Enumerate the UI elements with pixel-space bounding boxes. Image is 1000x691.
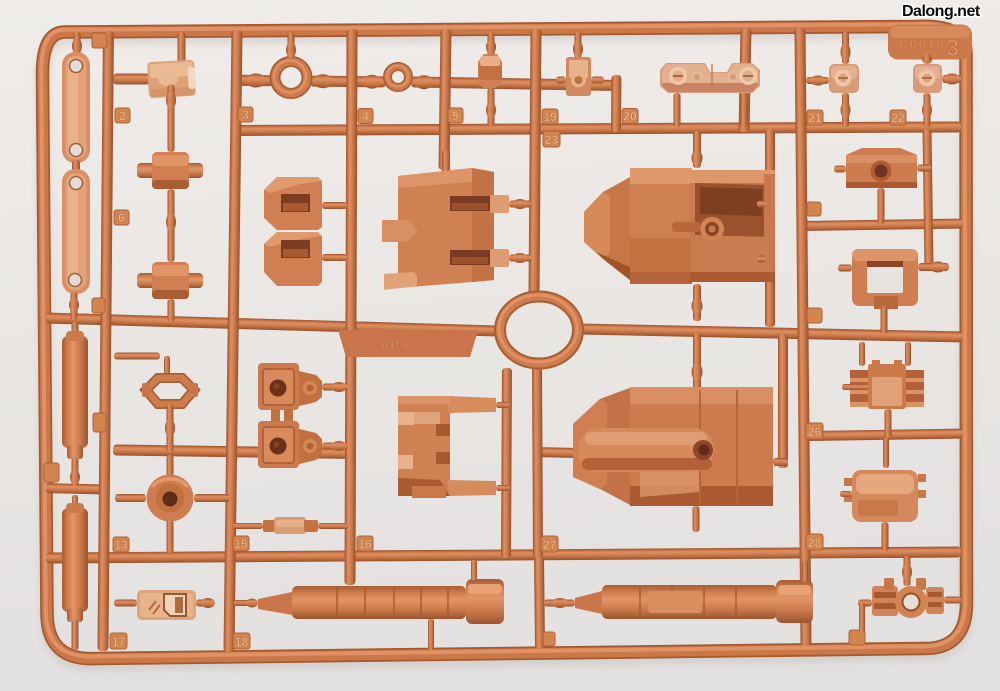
- svg-text:4: 4: [362, 109, 369, 123]
- svg-text:13: 13: [114, 538, 128, 552]
- svg-text:C0010: C0010: [899, 36, 945, 51]
- svg-text:22: 22: [891, 111, 905, 125]
- svg-text:20: 20: [623, 109, 637, 123]
- svg-text:17: 17: [112, 635, 126, 649]
- svg-text:26: 26: [808, 425, 822, 439]
- svg-text:15: 15: [234, 537, 248, 551]
- svg-text:ABS: ABS: [380, 338, 410, 353]
- svg-text:Dalong.net: Dalong.net: [902, 3, 981, 20]
- svg-text:5: 5: [452, 109, 459, 123]
- svg-text:6: 6: [118, 211, 125, 225]
- svg-text:27: 27: [543, 538, 557, 552]
- svg-text:21: 21: [808, 111, 822, 125]
- svg-text:28: 28: [808, 536, 822, 550]
- svg-text:18: 18: [235, 635, 249, 649]
- svg-text:23: 23: [545, 133, 559, 147]
- svg-text:16: 16: [358, 537, 372, 551]
- svg-text:3: 3: [946, 35, 959, 62]
- svg-text:19: 19: [543, 110, 557, 124]
- svg-text:2: 2: [119, 109, 126, 123]
- svg-text:3: 3: [242, 108, 249, 122]
